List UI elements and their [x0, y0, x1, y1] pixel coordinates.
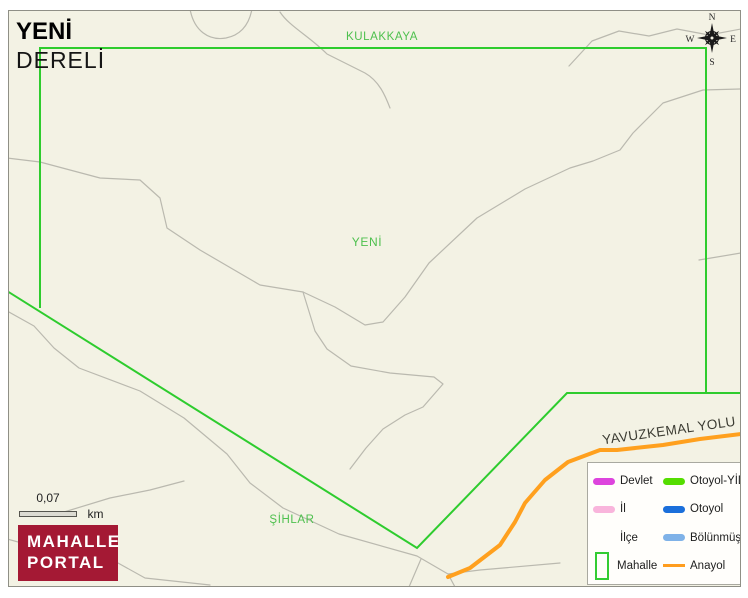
- mahalle-portal-logo: MAHALLE PORTAL: [18, 525, 118, 581]
- il-line-swatch: [593, 506, 615, 513]
- legend-item-devlet: Devlet: [593, 467, 663, 495]
- legend-item-ilce: İlçe: [593, 524, 663, 552]
- legend-label: Bölünmüş Y: [690, 532, 741, 544]
- scale-bar-value: 0,07: [19, 491, 77, 505]
- ilce-blank-swatch: [593, 534, 615, 541]
- boundary-north-east: [40, 48, 706, 393]
- compass-rose-icon: N E S W: [686, 13, 737, 68]
- legend-label: İlçe: [620, 532, 638, 544]
- map-legend: Devlet Otoyol-YİD İl Otoyol İlçe Bölünmü…: [587, 462, 741, 585]
- legend-item-il: İl: [593, 495, 663, 523]
- legend-item-bolunmus-yol: Bölünmüş Y: [663, 524, 741, 552]
- map-title-line2: DERELİ: [16, 46, 105, 75]
- compass-north-label: N: [709, 13, 716, 23]
- legend-label: Anayol: [690, 560, 725, 572]
- otoyol-line-swatch: [663, 506, 685, 513]
- legend-label: İl: [620, 503, 626, 515]
- place-label-kulakkaya: KULAKKAYA: [337, 31, 427, 43]
- legend-item-otoyol: Otoyol: [663, 495, 741, 523]
- compass-east-label: E: [730, 35, 736, 45]
- otoyol-yid-line-swatch: [663, 478, 685, 485]
- legend-label: Mahalle: [617, 560, 657, 572]
- place-label-sihlar: ŞİHLAR: [257, 514, 327, 526]
- legend-item-anayol: Anayol: [663, 552, 741, 580]
- devlet-line-swatch: [593, 478, 615, 485]
- place-label-yeni: YENİ: [337, 235, 397, 249]
- logo-line1: MAHALLE: [27, 531, 118, 552]
- mahalle-area-swatch: [595, 552, 609, 580]
- legend-item-mahalle: Mahalle: [593, 552, 663, 580]
- scale-bar-unit: km: [87, 507, 103, 521]
- logo-line2: PORTAL: [27, 552, 118, 573]
- compass-west-label: W: [686, 35, 695, 45]
- anayol-line-swatch: [663, 564, 685, 567]
- legend-label: Otoyol-YİD: [690, 475, 741, 487]
- map-title-line1: YENİ: [16, 17, 105, 46]
- bolunmus-yol-line-swatch: [663, 534, 685, 541]
- scale-bar-rule: [19, 511, 77, 517]
- legend-label: Otoyol: [690, 503, 723, 515]
- map-canvas[interactable]: N E S W YENİ DERELİ KULAKKAYA YENİ ŞİHLA…: [8, 10, 741, 587]
- scale-bar: 0,07 km: [19, 491, 129, 523]
- compass-south-label: S: [709, 58, 714, 68]
- legend-item-otoyol-yid: Otoyol-YİD: [663, 467, 741, 495]
- legend-label: Devlet: [620, 475, 653, 487]
- map-title: YENİ DERELİ: [16, 17, 105, 75]
